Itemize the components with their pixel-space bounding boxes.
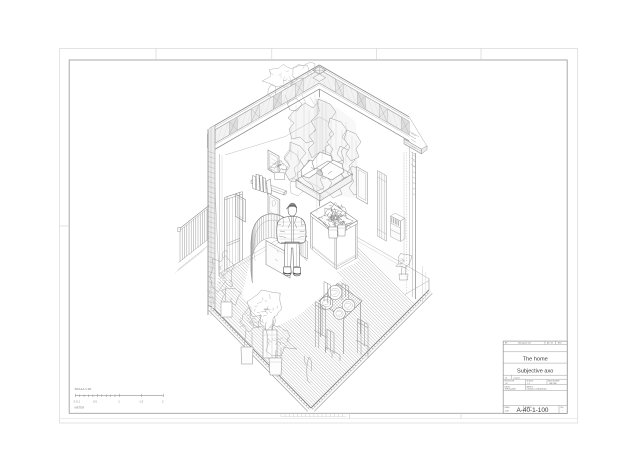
- svg-text:0 0.1: 0 0.1: [74, 400, 81, 404]
- svg-text:SKALA 1:20: SKALA 1:20: [75, 387, 92, 391]
- svg-text:Ankargatan 2 A: Ankargatan 2 A: [518, 342, 531, 345]
- svg-text:01: 01: [506, 383, 508, 385]
- svg-text:A3 1:20: A3 1:20: [547, 342, 553, 345]
- svg-text:JYH-05-2020: JYH-05-2020: [505, 389, 516, 391]
- svg-text:Legend: Legend: [514, 377, 520, 379]
- svg-text:LJ: LJ: [528, 383, 530, 385]
- svg-text:METER: METER: [75, 405, 85, 409]
- svg-text:OBL JML: OBL JML: [549, 383, 557, 385]
- svg-text:1.5: 1.5: [139, 400, 143, 404]
- svg-text:Chalmers arkitektskolan: Chalmers arkitektskolan: [527, 388, 547, 391]
- svg-text:Blad: Blad: [558, 343, 561, 345]
- svg-text:A-40-1-100: A-40-1-100: [517, 407, 549, 414]
- svg-text:REV: REV: [561, 407, 564, 409]
- svg-text:0.5: 0.5: [93, 400, 97, 404]
- svg-text:Subjective axo: Subjective axo: [517, 369, 553, 375]
- svg-text:The home: The home: [523, 356, 548, 362]
